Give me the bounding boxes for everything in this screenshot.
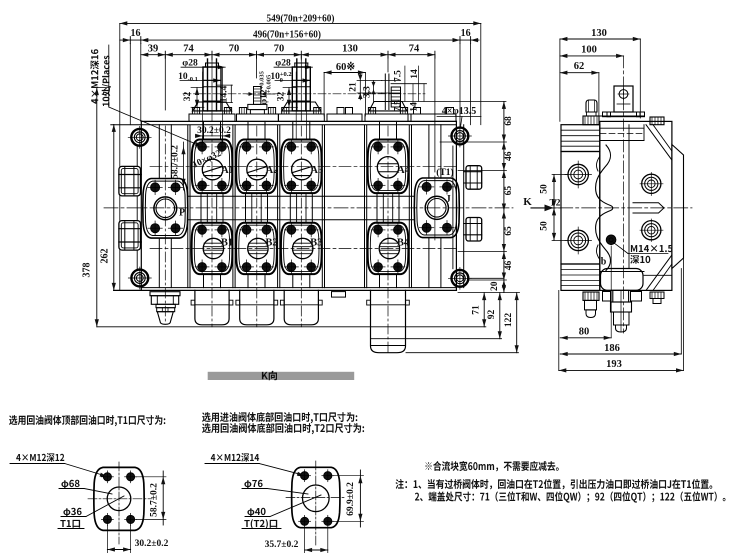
svg-text:378: 378 xyxy=(82,263,93,278)
svg-text:262: 262 xyxy=(100,249,111,264)
svg-text:21: 21 xyxy=(349,82,359,92)
svg-text:69.9±0.2: 69.9±0.2 xyxy=(346,482,356,516)
svg-text:16: 16 xyxy=(461,28,471,39)
svg-text:496(70n+156+60): 496(70n+156+60) xyxy=(253,30,321,41)
svg-text:J: J xyxy=(446,194,451,205)
svg-text:74: 74 xyxy=(183,44,194,55)
svg-text:39: 39 xyxy=(148,44,159,55)
svg-text:30.2±0.2: 30.2±0.2 xyxy=(135,539,169,549)
svg-text:B1: B1 xyxy=(221,238,233,249)
svg-text:(T1): (T1) xyxy=(436,167,453,178)
svg-text:4×φ13.5: 4×φ13.5 xyxy=(442,106,476,117)
svg-text:b: b xyxy=(601,257,607,268)
svg-text:62: 62 xyxy=(574,61,585,72)
svg-text:71: 71 xyxy=(472,305,482,315)
svg-text:16: 16 xyxy=(131,28,141,39)
svg-text:100: 100 xyxy=(581,45,597,56)
svg-text:68: 68 xyxy=(504,116,514,126)
svg-text:A2: A2 xyxy=(266,165,279,176)
svg-text:30.2±0.2: 30.2±0.2 xyxy=(197,126,231,136)
svg-text:46: 46 xyxy=(504,151,514,161)
svg-text:60※: 60※ xyxy=(336,61,356,73)
svg-text:70: 70 xyxy=(229,44,240,55)
svg-text:B3: B3 xyxy=(310,238,322,249)
svg-text:65: 65 xyxy=(504,226,514,236)
svg-text:A4: A4 xyxy=(397,165,411,176)
svg-text:58.7±0.2: 58.7±0.2 xyxy=(171,145,181,179)
svg-text:7.5: 7.5 xyxy=(394,70,404,82)
svg-text:193: 193 xyxy=(606,359,622,370)
svg-text:122: 122 xyxy=(504,313,514,328)
svg-text:3,3: 3,3 xyxy=(363,86,373,98)
svg-text:130: 130 xyxy=(591,28,607,39)
svg-text:50: 50 xyxy=(540,184,550,194)
svg-text:20: 20 xyxy=(490,281,500,291)
svg-text:46: 46 xyxy=(504,261,514,271)
svg-text:65: 65 xyxy=(504,186,514,196)
svg-text:92: 92 xyxy=(487,310,497,320)
svg-text:35.7±0.2: 35.7±0.2 xyxy=(265,540,299,550)
svg-text:P: P xyxy=(179,208,185,219)
svg-text:B4: B4 xyxy=(397,238,410,249)
svg-text:K: K xyxy=(523,196,532,208)
svg-text:70: 70 xyxy=(274,44,285,55)
svg-text:549(70n+209+60): 549(70n+209+60) xyxy=(267,13,335,24)
svg-text:14: 14 xyxy=(410,102,420,112)
svg-text:A1: A1 xyxy=(221,165,234,176)
svg-text:32: 32 xyxy=(277,92,287,102)
svg-text:186: 186 xyxy=(604,343,620,354)
svg-text:B2: B2 xyxy=(265,238,277,249)
svg-text:32: 32 xyxy=(183,92,193,102)
svg-text:58.7±0.2: 58.7±0.2 xyxy=(150,483,160,517)
svg-text:A3: A3 xyxy=(310,165,323,176)
svg-text:130: 130 xyxy=(342,44,358,55)
svg-text:50: 50 xyxy=(540,221,550,231)
svg-text:74: 74 xyxy=(409,44,420,55)
svg-text:80: 80 xyxy=(579,327,590,338)
